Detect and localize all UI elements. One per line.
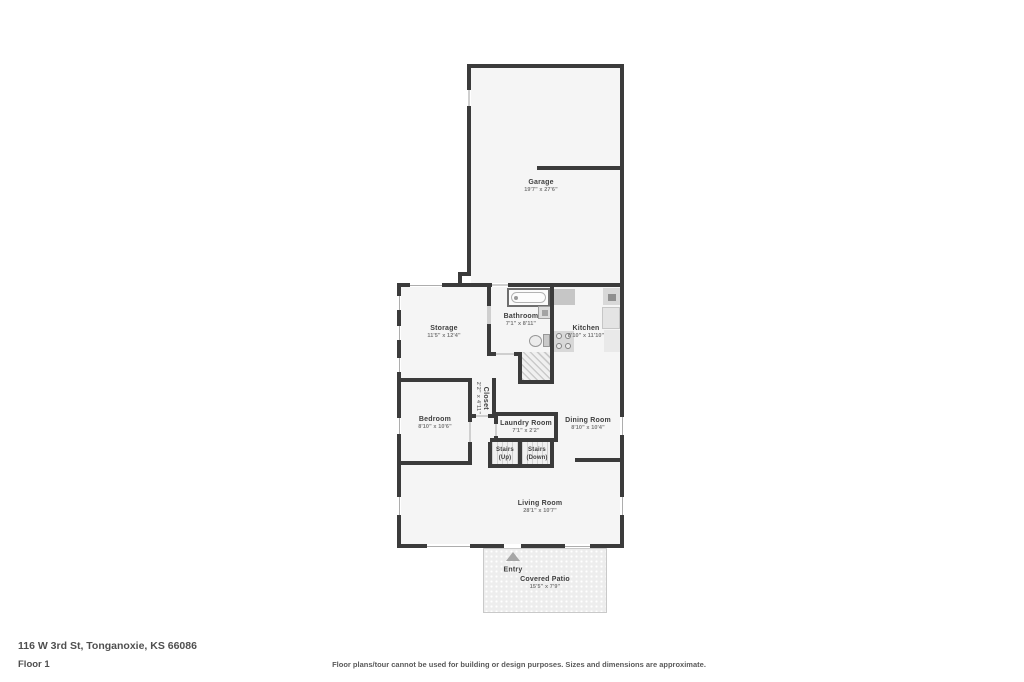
room-label-dining: Dining Room 8'10" x 10'4"	[565, 416, 611, 432]
wall	[397, 461, 468, 465]
wall	[467, 64, 624, 68]
closet-door	[476, 415, 488, 417]
wall	[470, 544, 504, 548]
disclaimer-text: Floor plans/tour cannot be used for buil…	[332, 660, 706, 669]
room-label-living: Living Room 28'1" x 10'7"	[518, 499, 563, 515]
bathtub-icon	[507, 288, 550, 307]
wall	[620, 435, 624, 497]
room-label-closet: Closet 2'2" x 4'11"	[474, 382, 490, 415]
window	[410, 283, 442, 287]
room-label-stairs-up: Stairs (Up)	[496, 447, 514, 463]
window	[565, 544, 590, 548]
stove-burner	[556, 333, 562, 339]
entry-arrow-icon	[506, 552, 520, 561]
wall	[590, 544, 624, 548]
bathroom-sink-basin	[542, 310, 548, 316]
wall	[492, 378, 496, 416]
room-label-patio: Covered Patio 15'5" x 7'9"	[520, 575, 570, 591]
window	[620, 497, 624, 515]
room-label-stairs-down: Stairs (Down)	[527, 447, 548, 463]
room-label-garage: Garage 19'7" x 27'6"	[524, 178, 558, 194]
bathtub-faucet	[514, 296, 518, 300]
refrigerator-icon	[602, 307, 620, 329]
stove-burner	[565, 343, 571, 349]
window	[397, 296, 401, 310]
kitchen-sink-icon	[603, 288, 620, 305]
floor-plan: Garage 19'7" x 27'6" Storage 11'5" x 12'…	[0, 0, 1024, 682]
kitchen-counter	[554, 289, 575, 305]
room-label-entry: Entry	[504, 565, 523, 574]
kitchen-counter-right	[604, 330, 620, 352]
floor-label: Floor 1	[18, 659, 50, 670]
bathroom-pocket-door	[487, 306, 491, 324]
wall	[488, 464, 554, 468]
wall	[397, 434, 401, 497]
window	[427, 544, 470, 548]
bedroom-door	[469, 422, 471, 442]
wall	[397, 283, 401, 296]
wall	[401, 378, 472, 382]
wall	[550, 352, 554, 384]
wall	[620, 287, 624, 417]
wall	[490, 438, 558, 442]
wall	[442, 283, 492, 287]
window	[397, 326, 401, 340]
stove-burner	[556, 343, 562, 349]
wall	[487, 324, 491, 354]
bathroom-door	[496, 353, 514, 355]
wall	[494, 416, 498, 424]
kitchen-sink-basin	[608, 294, 616, 301]
wall	[397, 310, 401, 326]
toilet-tank-icon	[543, 334, 550, 347]
wall	[397, 544, 427, 548]
wall	[508, 283, 624, 287]
toilet-bowl-icon	[529, 335, 542, 347]
wall	[620, 64, 624, 287]
wall	[521, 544, 565, 548]
window	[620, 417, 624, 435]
wall	[487, 352, 496, 356]
wall	[487, 287, 491, 306]
wall	[467, 64, 471, 90]
wall	[467, 106, 471, 272]
window	[397, 497, 401, 515]
room-label-bathroom: Bathroom 7'1" x 8'11"	[504, 312, 539, 328]
wall	[494, 412, 558, 416]
wall	[518, 380, 554, 384]
room-label-kitchen: Kitchen 8'10" x 11'10"	[568, 324, 604, 340]
laundry-door	[495, 424, 497, 436]
room-label-storage: Storage 11'5" x 12'4"	[427, 324, 460, 340]
room-label-laundry: Laundry Room 7'1" x 2'2"	[500, 419, 552, 435]
property-address: 116 W 3rd St, Tonganoxie, KS 66086	[18, 640, 197, 652]
wall	[397, 340, 401, 358]
wall	[468, 442, 472, 465]
garage-floor	[471, 68, 620, 283]
garage-entry-door	[492, 284, 508, 286]
garage-side-door	[468, 90, 470, 106]
window	[397, 418, 401, 434]
wall	[575, 458, 624, 462]
window	[397, 358, 401, 372]
wall	[537, 166, 620, 170]
wall	[550, 287, 554, 352]
hatched-area	[522, 352, 550, 380]
room-label-bedroom: Bedroom 8'10" x 10'6"	[418, 415, 452, 431]
